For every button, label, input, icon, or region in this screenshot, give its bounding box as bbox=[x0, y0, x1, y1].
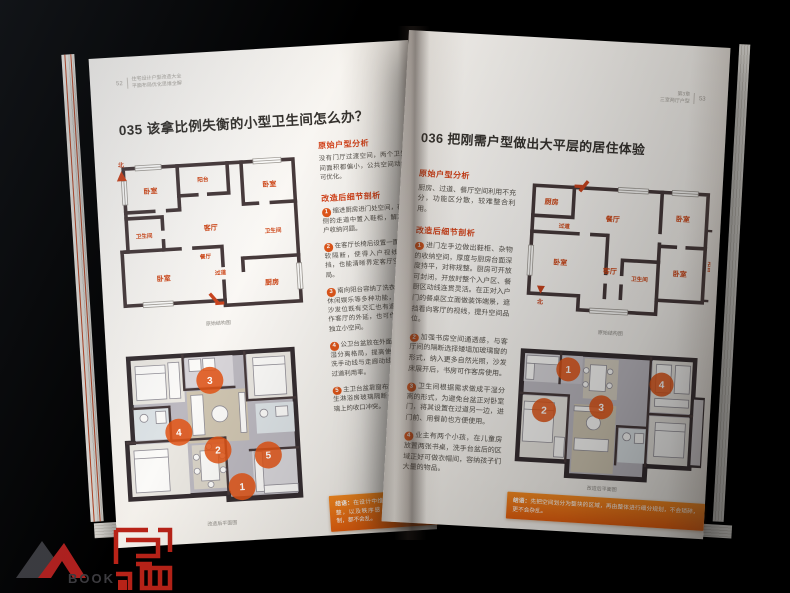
left-page-number: 52 bbox=[116, 80, 123, 86]
svg-text:卧室: 卧室 bbox=[673, 269, 687, 279]
left-running-head: 52 住宅设计户型改造大全 平面布局优化思维全解 bbox=[116, 74, 182, 91]
right-conclusion-box: 结语：先把空间划分为整块的区域，再由整体进行细分规划，不会琐碎，更不会杂乱。 bbox=[506, 492, 705, 532]
entry-door-icon bbox=[208, 292, 224, 306]
inner-walls bbox=[517, 351, 695, 468]
detail-item: 1进门左手边做出鞋柜、杂物的收纳空间，厚度与厨房台面深度持平，对称规整。厨房可开… bbox=[411, 241, 514, 331]
right-running-head-lines: 第3章 三室两厅户型 bbox=[660, 90, 691, 105]
item-number-badge: 1 bbox=[322, 208, 331, 217]
floorplan-walls bbox=[528, 185, 715, 317]
svg-text:卧室: 卧室 bbox=[262, 179, 277, 189]
svg-text:餐厅: 餐厅 bbox=[605, 214, 620, 224]
north-indicator: 北 bbox=[116, 161, 127, 182]
svg-text:卧室: 卧室 bbox=[156, 274, 171, 284]
item-number-badge: 1 bbox=[415, 242, 424, 251]
right-text-column: 原始户型分析 厨房、过道、餐厅空间利用不充分，功能区分散，较难整合利用。 改造后… bbox=[402, 169, 517, 486]
svg-text:餐厅: 餐厅 bbox=[199, 252, 212, 261]
detail-item: 4业主有两个小孩，在儿童房放置两张书桌，洗手台盆后的区域正好可做衣帽间，容纳孩子… bbox=[402, 431, 502, 479]
item-number-badge: 4 bbox=[330, 342, 339, 351]
svg-text:客厅: 客厅 bbox=[203, 223, 219, 233]
detail-item: 2加强书房空间通透感，与客厅间的隔断选择矮墙加玻璃窗的形式，纳入更多自然光照，沙… bbox=[408, 332, 508, 380]
svg-text:卧室: 卧室 bbox=[676, 214, 690, 224]
room-labels: 厨房 过道 餐厅 卧室 卧室 客厅 卫生间 卧室 阳台 bbox=[540, 197, 715, 288]
analysis-text: 没有门厅过渡空间，两个卫生间面积都偏小，公共空间动线可优化。 bbox=[319, 150, 409, 183]
item-number-badge: 2 bbox=[324, 243, 333, 252]
svg-text:北: 北 bbox=[537, 298, 543, 306]
seal-block bbox=[118, 580, 127, 590]
balcony bbox=[689, 398, 705, 467]
svg-text:过道: 过道 bbox=[215, 268, 227, 277]
divider bbox=[694, 93, 696, 104]
svg-text:4: 4 bbox=[176, 428, 183, 439]
renovation-markers: 3 4 2 5 1 bbox=[162, 363, 285, 505]
floorplan-windows bbox=[525, 183, 698, 319]
analysis-heading: 原始户型分析 bbox=[318, 136, 406, 151]
floorplan-walls bbox=[117, 159, 301, 311]
photo-background: 52 住宅设计户型改造大全 平面布局优化思维全解 035 该拿比例失衡的小型卫生… bbox=[0, 0, 790, 593]
svg-text:2: 2 bbox=[215, 445, 222, 456]
right-page: 第3章 三室两厅户型 53 036 把刚需户型做出大平层的居住体验 原始户型分析… bbox=[382, 30, 731, 539]
svg-text:厨房: 厨房 bbox=[544, 197, 558, 207]
detail-item: 3卫生间根据需求做成干湿分离的形式，为避免台盆正对卧室门，将其设置在过道另一边，… bbox=[405, 382, 505, 430]
mbook-logo: BOOK bbox=[12, 528, 114, 588]
svg-text:卫生间: 卫生间 bbox=[264, 226, 282, 235]
item-number-badge: 2 bbox=[410, 333, 419, 342]
floorplan-outline bbox=[122, 349, 300, 505]
item-number-badge: 3 bbox=[407, 383, 416, 392]
analysis-text: 厨房、过道、餐厅空间利用不充分，功能区分散，较难整合利用。 bbox=[417, 183, 517, 220]
furniture bbox=[521, 355, 690, 464]
right-original-plan-caption: 原始结构图 bbox=[514, 324, 706, 342]
analysis-heading: 原始户型分析 bbox=[419, 169, 517, 185]
right-article-title: 036 把刚需户型做出大平层的居住体验 bbox=[421, 127, 722, 163]
divider bbox=[126, 78, 128, 89]
svg-text:4: 4 bbox=[658, 380, 665, 391]
inner-walls bbox=[122, 349, 300, 499]
svg-text:卫生间: 卫生间 bbox=[136, 231, 154, 240]
svg-text:过道: 过道 bbox=[558, 222, 570, 231]
floorplan-windows bbox=[121, 156, 304, 308]
floorplan-outline bbox=[516, 351, 695, 482]
red-seal-stamp bbox=[112, 522, 174, 592]
logo-book-text: BOOK bbox=[68, 571, 114, 586]
item-number-badge: 4 bbox=[404, 432, 413, 441]
right-original-floorplan: 北 厨房 过道 餐厅 卧室 卧室 客厅 卫生间 卧室 阳台 bbox=[515, 169, 715, 331]
right-renovated-floorplan: 1 2 3 4 bbox=[504, 334, 708, 489]
svg-text:1: 1 bbox=[239, 482, 246, 493]
left-article-title: 035 该拿比例失衡的小型卫生间怎么办？ bbox=[118, 102, 409, 139]
svg-text:卧室: 卧室 bbox=[143, 186, 158, 196]
left-renovated-floorplan: 3 4 2 5 1 bbox=[114, 334, 320, 521]
detail-heading: 改造后细节剖析 bbox=[415, 226, 513, 242]
detail-heading: 改造后细节剖析 bbox=[321, 189, 409, 204]
svg-text:1: 1 bbox=[565, 365, 572, 376]
left-original-plan-caption: 原始结构图 bbox=[116, 314, 320, 333]
svg-text:北: 北 bbox=[118, 161, 124, 169]
item-number-badge: 5 bbox=[332, 386, 341, 395]
room-floors bbox=[125, 352, 299, 502]
svg-text:厨房: 厨房 bbox=[265, 277, 280, 287]
svg-text:3: 3 bbox=[598, 403, 605, 414]
svg-text:阳台: 阳台 bbox=[706, 261, 715, 273]
right-renovated-plan-caption: 改造后平面图 bbox=[504, 480, 700, 498]
renovation-markers: 1 2 3 4 bbox=[531, 356, 674, 430]
right-page-number: 53 bbox=[699, 96, 706, 102]
left-original-floorplan: 北 卧室 阳台 卧室 客厅 卫生间 卫生间 卧室 餐厅 过道 厨房 bbox=[106, 142, 320, 322]
svg-text:2: 2 bbox=[541, 405, 548, 416]
left-running-head-lines: 住宅设计户型改造大全 平面布局优化思维全解 bbox=[131, 74, 182, 90]
right-running-head: 第3章 三室两厅户型 53 bbox=[660, 90, 706, 106]
furniture bbox=[129, 354, 299, 501]
item-number-badge: 3 bbox=[327, 288, 336, 297]
svg-text:卧室: 卧室 bbox=[553, 257, 567, 267]
north-indicator: 北 bbox=[536, 286, 545, 306]
svg-text:卫生间: 卫生间 bbox=[631, 275, 649, 284]
room-floors bbox=[519, 353, 693, 478]
svg-text:阳台: 阳台 bbox=[197, 175, 209, 184]
svg-text:5: 5 bbox=[265, 450, 272, 461]
svg-text:3: 3 bbox=[207, 376, 214, 387]
entry-door-icon bbox=[574, 179, 589, 192]
room-labels: 卧室 阳台 卧室 客厅 卫生间 卫生间 卧室 餐厅 过道 厨房 bbox=[132, 171, 285, 294]
svg-text:客厅: 客厅 bbox=[602, 266, 617, 276]
